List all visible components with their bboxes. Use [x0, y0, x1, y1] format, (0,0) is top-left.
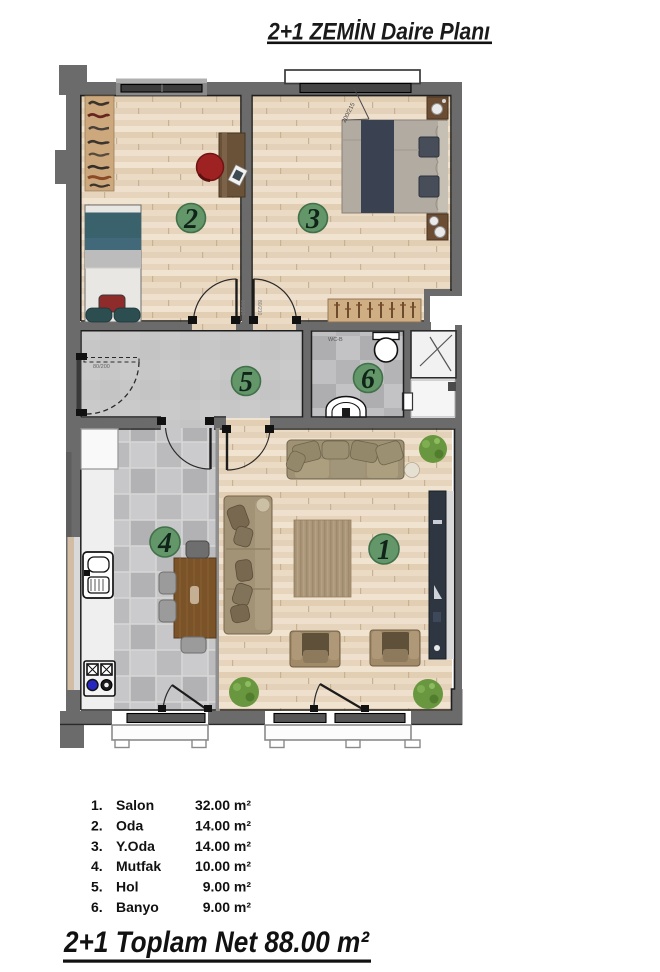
svg-text:80/210: 80/210 [256, 300, 262, 316]
svg-text:2: 2 [183, 204, 198, 235]
svg-text:80/210: 80/210 [239, 300, 245, 316]
svg-text:WC-B: WC-B [328, 337, 343, 343]
svg-text:14.00 m²: 14.00 m² [195, 838, 251, 854]
svg-text:Hol: Hol [116, 879, 139, 895]
svg-text:80/200: 80/200 [93, 364, 110, 370]
svg-text:1.: 1. [91, 797, 103, 813]
svg-text:2+1 ZEMİN Daire Planı: 2+1 ZEMİN Daire Planı [267, 19, 490, 46]
svg-text:9.00 m²: 9.00 m² [203, 899, 252, 915]
svg-text:1: 1 [377, 535, 391, 566]
svg-text:5: 5 [239, 367, 253, 398]
svg-text:6.: 6. [91, 899, 103, 915]
svg-text:Banyo: Banyo [116, 899, 159, 915]
svg-text:5.: 5. [91, 879, 103, 895]
svg-text:Oda: Oda [116, 818, 143, 834]
svg-text:2.: 2. [91, 818, 103, 834]
svg-text:14.00 m²: 14.00 m² [195, 818, 251, 834]
svg-text:4: 4 [157, 528, 172, 559]
svg-text:3: 3 [305, 204, 320, 235]
svg-text:32.00 m²: 32.00 m² [195, 797, 251, 813]
svg-text:Mutfak: Mutfak [116, 858, 161, 874]
svg-text:Salon: Salon [116, 797, 154, 813]
svg-text:2+1 Toplam Net 88.00 m²: 2+1 Toplam Net 88.00 m² [63, 926, 370, 959]
svg-text:Y.Oda: Y.Oda [116, 838, 155, 854]
svg-text:9.00 m²: 9.00 m² [203, 879, 252, 895]
svg-text:10.00 m²: 10.00 m² [195, 858, 251, 874]
svg-text:4.: 4. [91, 858, 103, 874]
svg-text:3.: 3. [91, 838, 103, 854]
svg-text:6: 6 [361, 364, 375, 395]
